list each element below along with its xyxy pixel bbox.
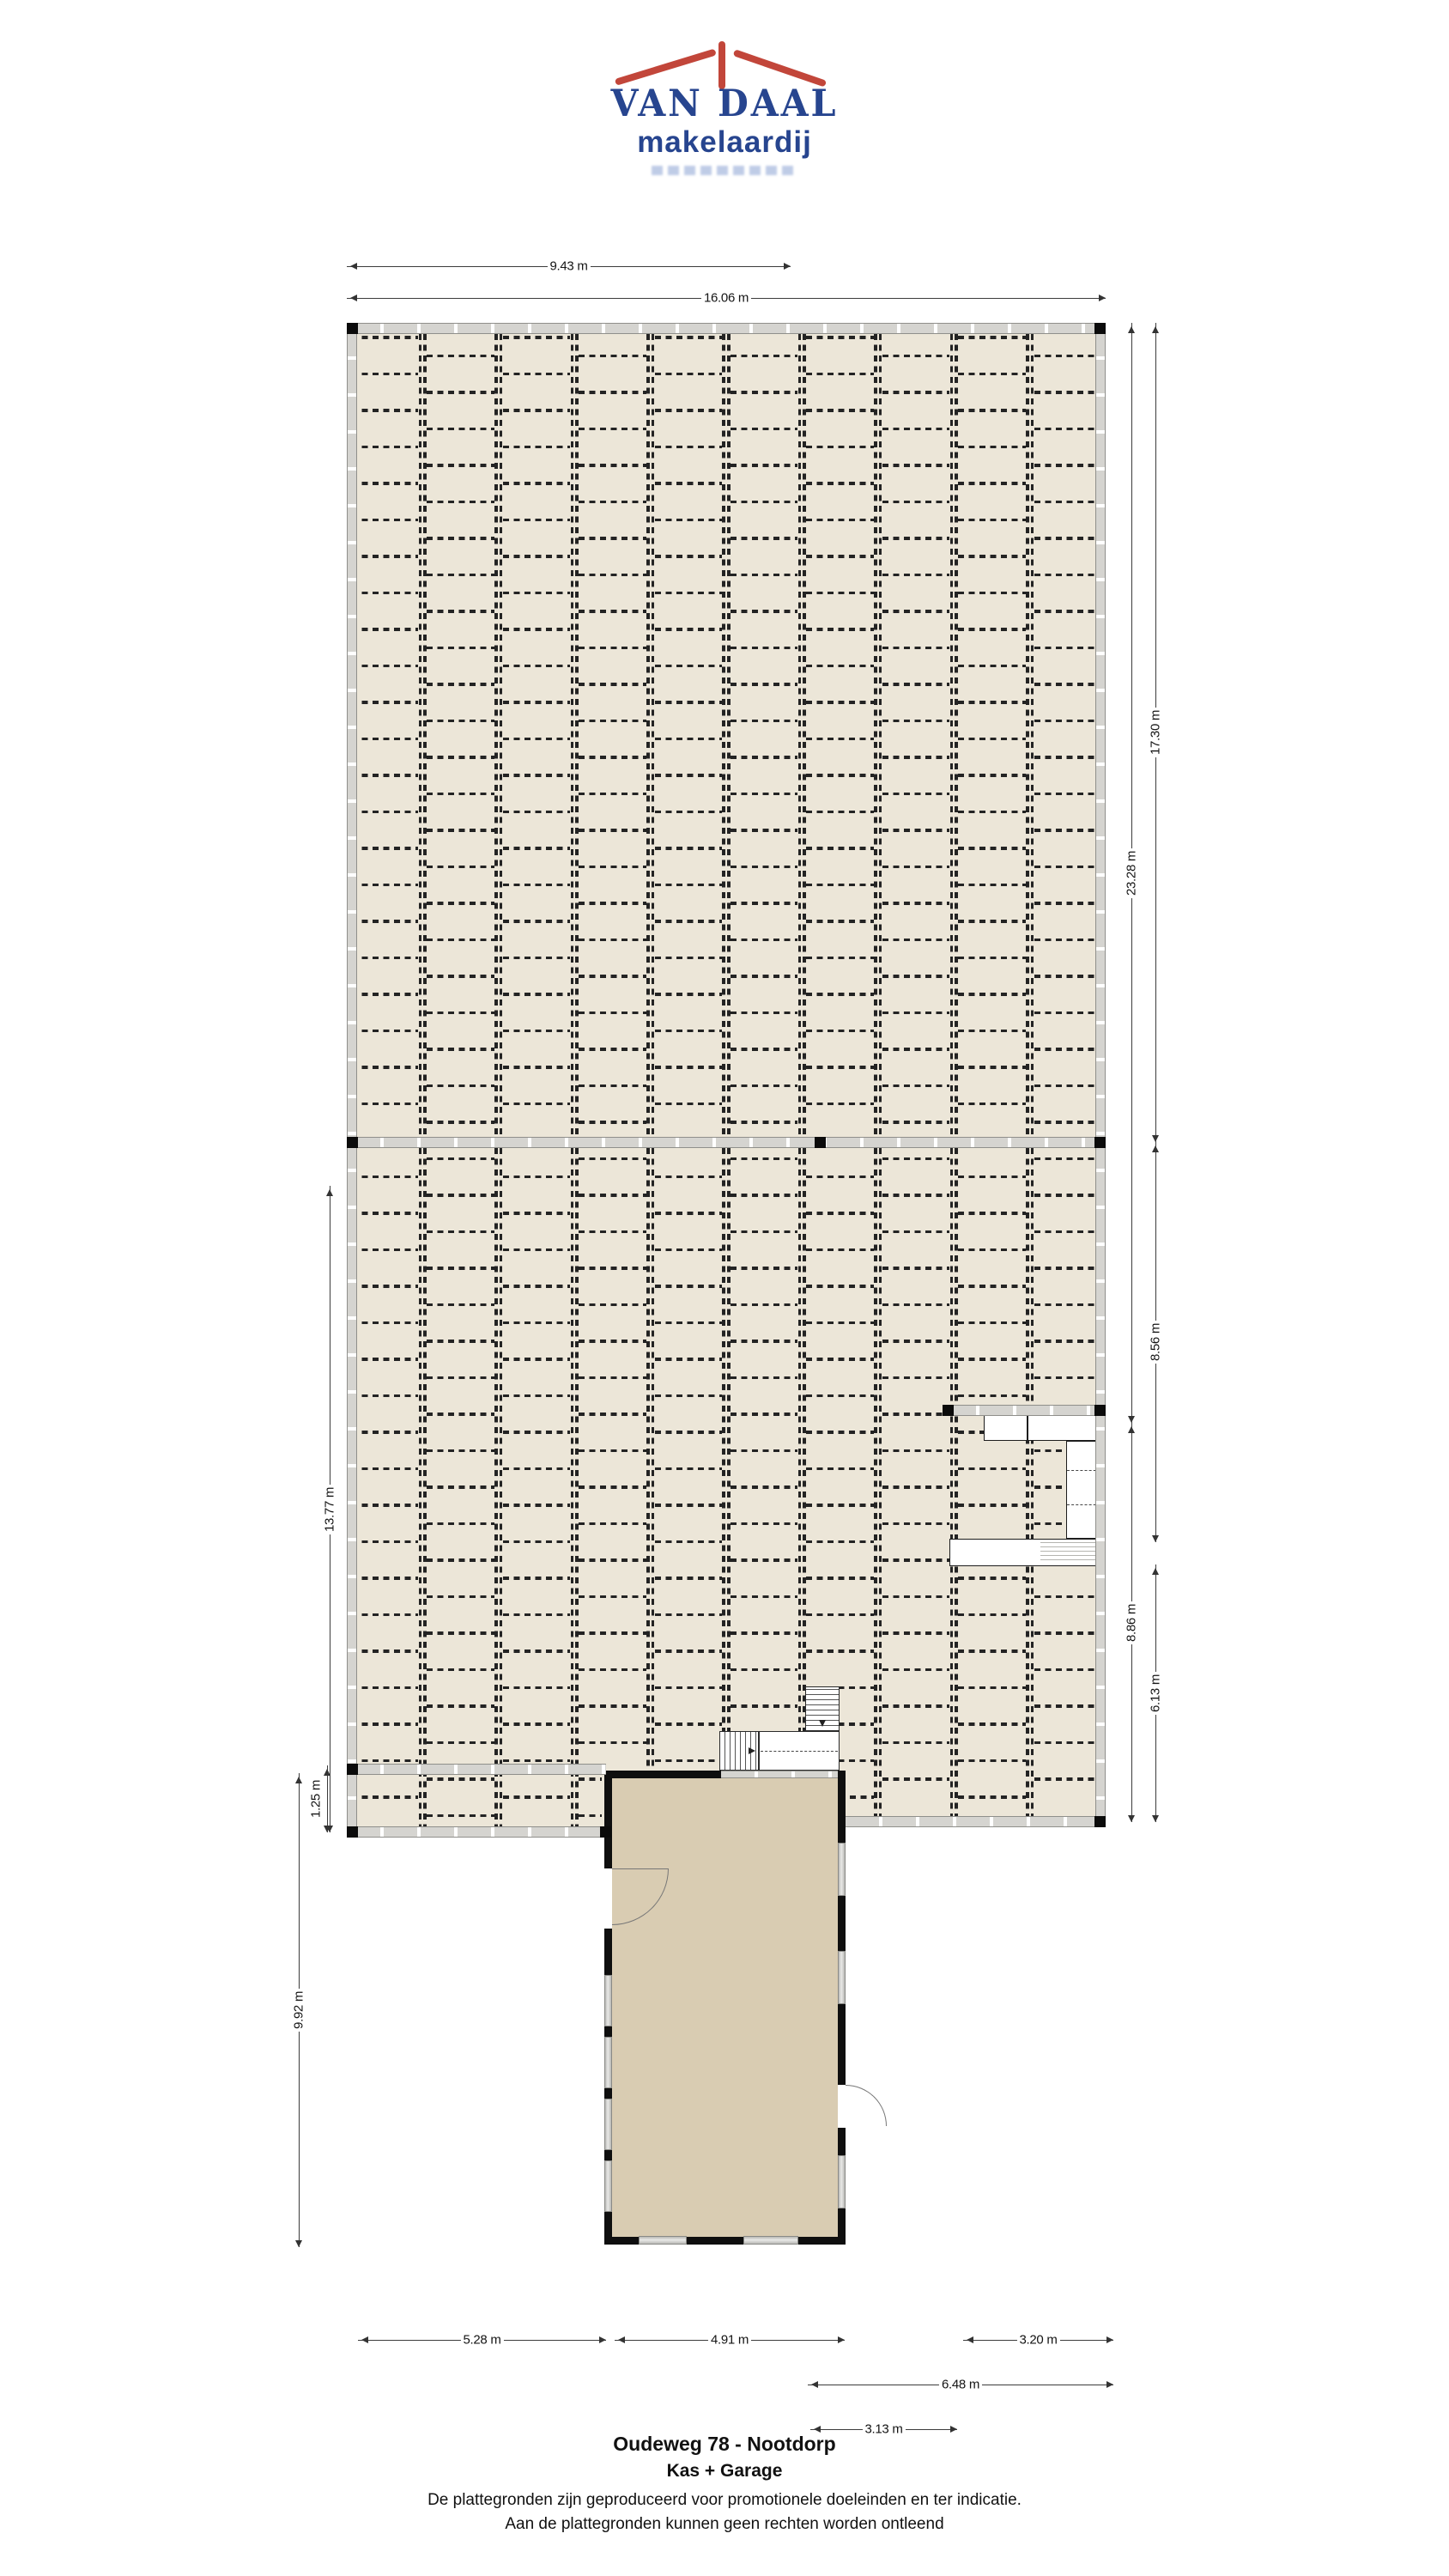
greenhouse-glass-wall bbox=[347, 323, 1106, 334]
crop-row-line bbox=[806, 1394, 873, 1398]
crop-row-line bbox=[503, 1649, 570, 1653]
row-divider-line bbox=[571, 1148, 574, 1771]
crop-row-line bbox=[351, 1321, 418, 1325]
crop-row-line bbox=[351, 1540, 418, 1544]
crop-row-line bbox=[958, 1103, 1025, 1106]
row-divider-line bbox=[874, 334, 877, 1137]
crop-row-line bbox=[351, 1795, 418, 1799]
crop-row-line bbox=[1034, 1704, 1101, 1708]
crop-row-line bbox=[427, 1741, 494, 1745]
crop-row-line bbox=[503, 1540, 570, 1544]
crop-row-line bbox=[1034, 501, 1101, 504]
crop-row-line bbox=[655, 1613, 722, 1617]
crop-row-line bbox=[806, 1504, 873, 1507]
crop-row-line bbox=[731, 647, 797, 650]
crop-row-line bbox=[655, 1103, 722, 1106]
crop-row-line bbox=[958, 373, 1025, 376]
greenhouse-glass-wall bbox=[1095, 323, 1106, 1827]
crop-row-line bbox=[351, 920, 418, 923]
dimension-label: 23.28 m bbox=[1125, 848, 1139, 897]
annex-corridor-hatch bbox=[1040, 1541, 1100, 1564]
crop-row-line bbox=[806, 774, 873, 777]
crop-row-line bbox=[806, 1358, 873, 1361]
crop-row-line bbox=[351, 1212, 418, 1215]
stair-direction-arrow bbox=[749, 1747, 759, 1754]
crop-bed-column bbox=[499, 334, 574, 1137]
crop-row-line bbox=[731, 1340, 797, 1343]
dimension-arrow bbox=[784, 263, 794, 270]
agency-logo: VAN DAAL makelaardij bbox=[0, 0, 1449, 197]
crop-row-line bbox=[731, 391, 797, 394]
crop-row-line bbox=[503, 628, 570, 631]
crop-row-line bbox=[806, 482, 873, 485]
crop-row-line bbox=[579, 391, 646, 394]
crop-row-line bbox=[579, 1340, 646, 1343]
crop-row-line bbox=[806, 1030, 873, 1033]
crop-bed-column bbox=[499, 1148, 574, 1771]
crop-row-line bbox=[806, 1176, 873, 1179]
crop-row-line bbox=[427, 1814, 494, 1818]
crop-row-line bbox=[351, 1358, 418, 1361]
crop-row-line bbox=[503, 336, 570, 339]
crop-row-line bbox=[655, 482, 722, 485]
address-title: Oudeweg 78 - Nootdorp bbox=[0, 2433, 1449, 2456]
crop-row-line bbox=[806, 920, 873, 923]
crop-row-line bbox=[731, 1668, 797, 1672]
crop-row-line bbox=[806, 665, 873, 668]
crop-row-line bbox=[579, 1631, 646, 1635]
crop-row-line bbox=[958, 701, 1025, 704]
dimension-arrow bbox=[950, 2426, 961, 2433]
crop-row-line bbox=[731, 1121, 797, 1124]
crop-row-line bbox=[882, 610, 949, 613]
crop-row-line bbox=[351, 1722, 418, 1726]
crop-row-line bbox=[579, 1194, 646, 1197]
dimension-arrow bbox=[295, 2240, 302, 2251]
stair-direction-arrow bbox=[819, 1720, 826, 1730]
crop-row-line bbox=[351, 1613, 418, 1617]
crop-row-line bbox=[882, 939, 949, 942]
crop-bed-column bbox=[878, 1771, 954, 1818]
crop-row-line bbox=[882, 793, 949, 796]
crop-row-line bbox=[731, 1267, 797, 1270]
dimension-arrow bbox=[347, 263, 357, 270]
row-divider-line bbox=[955, 1148, 958, 1771]
crop-row-line bbox=[958, 555, 1025, 558]
crop-row-line bbox=[731, 1157, 797, 1161]
crop-row-line bbox=[806, 738, 873, 741]
logo-subtitle: makelaardij bbox=[0, 125, 1449, 160]
crop-row-line bbox=[579, 610, 646, 613]
row-divider-line bbox=[803, 334, 806, 1137]
crop-row-line bbox=[351, 738, 418, 741]
crop-row-line bbox=[1034, 683, 1101, 686]
row-divider-line bbox=[500, 1771, 503, 1828]
crop-row-line bbox=[579, 1668, 646, 1672]
row-divider-line bbox=[423, 1771, 427, 1828]
garage-window bbox=[838, 1843, 846, 1896]
crop-row-line bbox=[655, 1431, 722, 1434]
crop-bed-column bbox=[878, 1148, 954, 1771]
crop-row-line bbox=[1034, 1267, 1101, 1270]
crop-bed-column bbox=[422, 1148, 498, 1771]
crop-row-line bbox=[958, 446, 1025, 449]
crop-row-line bbox=[427, 1376, 494, 1380]
crop-row-line bbox=[579, 793, 646, 796]
row-divider-line bbox=[571, 1771, 574, 1828]
dimension-label: 8.86 m bbox=[1125, 1601, 1139, 1643]
crop-bed-column bbox=[802, 1148, 877, 1771]
dimension-label: 13.77 m bbox=[323, 1484, 337, 1534]
crop-row-line bbox=[958, 1321, 1025, 1325]
crop-row-line bbox=[1034, 939, 1101, 942]
crop-row-line bbox=[882, 1777, 949, 1781]
crop-row-line bbox=[731, 1558, 797, 1562]
logo-tagline-faded bbox=[652, 166, 797, 175]
crop-row-line bbox=[1034, 793, 1101, 796]
crop-row-line bbox=[1034, 464, 1101, 467]
crop-row-line bbox=[579, 720, 646, 723]
dimension-arrow bbox=[615, 2336, 625, 2343]
crop-row-line bbox=[1034, 1303, 1101, 1307]
crop-row-line bbox=[806, 957, 873, 960]
crop-row-line bbox=[806, 1467, 873, 1471]
crop-row-line bbox=[503, 446, 570, 449]
crop-row-line bbox=[958, 482, 1025, 485]
greenhouse-glass-wall bbox=[347, 1137, 1106, 1148]
crop-row-line bbox=[427, 1631, 494, 1635]
crop-row-line bbox=[427, 1157, 494, 1161]
crop-row-line bbox=[731, 683, 797, 686]
logo-title: VAN DAAL bbox=[29, 82, 1420, 125]
garage-top-opening bbox=[721, 1771, 838, 1778]
crop-row-line bbox=[958, 1394, 1025, 1398]
dimension-arrow bbox=[1152, 1142, 1159, 1152]
crop-row-line bbox=[655, 336, 722, 339]
crop-row-line bbox=[806, 1649, 873, 1653]
crop-row-line bbox=[503, 482, 570, 485]
crop-row-line bbox=[806, 1577, 873, 1580]
crop-row-line bbox=[958, 1212, 1025, 1215]
crop-row-line bbox=[1034, 1194, 1101, 1197]
row-divider-line bbox=[1031, 1148, 1034, 1771]
row-divider-line bbox=[955, 334, 958, 1137]
crop-row-line bbox=[427, 501, 494, 504]
crop-row-line bbox=[731, 756, 797, 759]
disclaimer-line-2: Aan de plattegronden kunnen geen rechten… bbox=[0, 2515, 1449, 2534]
crop-bed-column bbox=[422, 1771, 498, 1828]
greenhouse-grid bbox=[347, 334, 1106, 1137]
wall-corner-post bbox=[347, 1137, 358, 1148]
crop-row-line bbox=[882, 866, 949, 869]
crop-row-line bbox=[655, 993, 722, 996]
crop-row-line bbox=[958, 1249, 1025, 1252]
crop-row-line bbox=[958, 519, 1025, 522]
crop-row-line bbox=[427, 1777, 494, 1781]
dimension-arrow bbox=[1128, 323, 1135, 333]
greenhouse-grid bbox=[347, 1148, 1106, 1771]
crop-row-line bbox=[882, 1267, 949, 1270]
crop-row-line bbox=[503, 1066, 570, 1069]
crop-row-line bbox=[655, 1467, 722, 1471]
crop-row-line bbox=[882, 720, 949, 723]
crop-row-line bbox=[882, 574, 949, 577]
row-divider-line bbox=[1026, 1148, 1029, 1771]
crop-row-line bbox=[1034, 1084, 1101, 1088]
crop-row-line bbox=[579, 756, 646, 759]
row-divider-line bbox=[575, 1148, 579, 1771]
crop-row-line bbox=[731, 720, 797, 723]
wall-corner-post bbox=[347, 1764, 358, 1775]
crop-row-line bbox=[655, 1066, 722, 1069]
roof-right-slope-icon bbox=[733, 49, 827, 87]
crop-row-line bbox=[427, 1449, 494, 1453]
crop-row-line bbox=[351, 1030, 418, 1033]
crop-row-line bbox=[806, 1431, 873, 1434]
crop-row-line bbox=[882, 1303, 949, 1307]
crop-row-line bbox=[806, 701, 873, 704]
crop-row-line bbox=[503, 1212, 570, 1215]
crop-row-line bbox=[503, 1686, 570, 1690]
crop-row-line bbox=[1034, 1741, 1101, 1745]
crop-row-line bbox=[882, 975, 949, 978]
greenhouse-glass-wall bbox=[347, 1764, 606, 1775]
garage-window bbox=[604, 1975, 612, 2026]
dimension-label: 17.30 m bbox=[1149, 708, 1163, 757]
crop-row-line bbox=[882, 1413, 949, 1416]
crop-row-line bbox=[579, 428, 646, 431]
crop-row-line bbox=[958, 884, 1025, 887]
crop-row-line bbox=[958, 1066, 1025, 1069]
garage-side-door bbox=[604, 1868, 612, 1929]
dimension-label: 3.20 m bbox=[1016, 2333, 1059, 2348]
crop-row-line bbox=[503, 555, 570, 558]
dimension-arrow bbox=[324, 1765, 330, 1776]
crop-row-line bbox=[351, 592, 418, 595]
roof-left-slope-icon bbox=[615, 49, 717, 86]
plan-subtitle: Kas + Garage bbox=[0, 2461, 1449, 2482]
row-divider-line bbox=[652, 1148, 655, 1771]
crop-bed-column bbox=[499, 1771, 574, 1828]
crop-row-line bbox=[351, 1249, 418, 1252]
garage-window bbox=[604, 2160, 612, 2212]
row-divider-line bbox=[500, 1148, 503, 1771]
crop-row-line bbox=[351, 1686, 418, 1690]
garage-floor bbox=[612, 1778, 838, 2237]
crop-row-line bbox=[958, 1686, 1025, 1690]
row-divider-line bbox=[950, 1148, 954, 1771]
crop-row-line bbox=[427, 1230, 494, 1234]
crop-row-line bbox=[579, 355, 646, 358]
crop-row-line bbox=[351, 1467, 418, 1471]
crop-row-line bbox=[958, 920, 1025, 923]
crop-row-line bbox=[731, 1595, 797, 1599]
crop-row-line bbox=[731, 902, 797, 905]
crop-row-line bbox=[731, 464, 797, 467]
crop-row-line bbox=[731, 537, 797, 540]
crop-row-line bbox=[579, 647, 646, 650]
crop-row-line bbox=[958, 847, 1025, 850]
crop-row-line bbox=[882, 355, 949, 358]
crop-row-line bbox=[503, 1467, 570, 1471]
wall-corner-post bbox=[1094, 1816, 1106, 1827]
dimension-arrow bbox=[1152, 1815, 1159, 1826]
crop-row-line bbox=[427, 683, 494, 686]
crop-row-line bbox=[958, 1285, 1025, 1288]
dimension-arrow bbox=[326, 1186, 333, 1196]
crop-row-line bbox=[351, 884, 418, 887]
crop-row-line bbox=[579, 1413, 646, 1416]
row-divider-line bbox=[1031, 334, 1034, 1137]
crop-row-line bbox=[427, 391, 494, 394]
crop-row-line bbox=[655, 738, 722, 741]
dimension-arrow bbox=[599, 2336, 609, 2343]
dimension-arrow bbox=[358, 2336, 368, 2343]
crop-row-line bbox=[579, 1485, 646, 1489]
crop-row-line bbox=[351, 1649, 418, 1653]
crop-row-line bbox=[1034, 537, 1101, 540]
crop-row-line bbox=[351, 628, 418, 631]
crop-row-line bbox=[503, 1795, 570, 1799]
crop-row-line bbox=[351, 774, 418, 777]
crop-row-line bbox=[1034, 647, 1101, 650]
crop-row-line bbox=[731, 975, 797, 978]
crop-row-line bbox=[958, 1504, 1025, 1507]
crop-row-line bbox=[806, 1321, 873, 1325]
wall-corner-post bbox=[347, 1826, 358, 1838]
crop-row-line bbox=[958, 957, 1025, 960]
row-divider-line bbox=[1026, 1771, 1029, 1818]
crop-row-line bbox=[503, 1321, 570, 1325]
dimension-label: 5.28 m bbox=[460, 2333, 503, 2348]
crop-row-line bbox=[503, 1103, 570, 1106]
crop-row-line bbox=[351, 519, 418, 522]
crop-row-line bbox=[882, 647, 949, 650]
crop-row-line bbox=[351, 1176, 418, 1179]
crop-row-line bbox=[503, 409, 570, 412]
row-divider-line bbox=[950, 334, 954, 1137]
crop-row-line bbox=[655, 409, 722, 412]
crop-bed-column bbox=[651, 1148, 726, 1771]
crop-row-line bbox=[1034, 574, 1101, 577]
crop-bed-column bbox=[726, 1148, 802, 1771]
crop-bed-column bbox=[1030, 1771, 1106, 1818]
row-divider-line bbox=[727, 334, 731, 1137]
crop-row-line bbox=[806, 1066, 873, 1069]
crop-row-line bbox=[503, 1394, 570, 1398]
crop-row-line bbox=[958, 1795, 1025, 1799]
crop-row-line bbox=[958, 738, 1025, 741]
row-divider-line bbox=[798, 334, 802, 1137]
crop-row-line bbox=[806, 373, 873, 376]
crop-row-line bbox=[731, 610, 797, 613]
crop-row-line bbox=[731, 793, 797, 796]
crop-bed-column bbox=[954, 1771, 1029, 1818]
crop-row-line bbox=[351, 957, 418, 960]
crop-row-line bbox=[806, 1212, 873, 1215]
crop-row-line bbox=[655, 1577, 722, 1580]
crop-row-line bbox=[503, 993, 570, 996]
row-divider-line bbox=[1026, 334, 1029, 1137]
crop-row-line bbox=[882, 391, 949, 394]
dimension-arrow bbox=[1099, 295, 1109, 301]
row-divider-line bbox=[646, 334, 650, 1137]
crop-row-line bbox=[427, 1485, 494, 1489]
row-divider-line bbox=[652, 334, 655, 1137]
crop-row-line bbox=[351, 1504, 418, 1507]
crop-row-line bbox=[731, 1048, 797, 1051]
crop-row-line bbox=[958, 336, 1025, 339]
wall-corner-post bbox=[1094, 1405, 1106, 1416]
crop-row-line bbox=[655, 957, 722, 960]
crop-bed-column bbox=[954, 334, 1029, 1137]
greenhouse-glass-wall bbox=[846, 1816, 1106, 1827]
crop-row-line bbox=[427, 975, 494, 978]
crop-row-line bbox=[655, 373, 722, 376]
crop-row-line bbox=[731, 866, 797, 869]
garage-window bbox=[604, 2037, 612, 2088]
crop-row-line bbox=[503, 1431, 570, 1434]
dimension-arrow bbox=[838, 2336, 848, 2343]
crop-bed-column bbox=[846, 1771, 878, 1818]
row-divider-line bbox=[727, 1148, 731, 1771]
greenhouse-glass-wall bbox=[943, 1405, 1106, 1416]
annex-room-divider bbox=[1027, 1415, 1028, 1441]
row-divider-line bbox=[879, 334, 882, 1137]
crop-row-line bbox=[882, 1485, 949, 1489]
crop-row-line bbox=[731, 939, 797, 942]
dimension-arrow bbox=[1152, 323, 1159, 333]
crop-row-line bbox=[579, 1814, 602, 1818]
crop-row-line bbox=[655, 1212, 722, 1215]
wall-corner-post bbox=[943, 1405, 954, 1416]
crop-row-line bbox=[806, 1249, 873, 1252]
crop-row-line bbox=[503, 774, 570, 777]
crop-row-line bbox=[503, 1613, 570, 1617]
crop-row-line bbox=[882, 1121, 949, 1124]
crop-row-line bbox=[351, 409, 418, 412]
crop-row-line bbox=[579, 1084, 646, 1088]
crop-row-line bbox=[579, 1558, 646, 1562]
greenhouse-grid bbox=[347, 1771, 606, 1828]
dimension-label: 16.06 m bbox=[701, 291, 751, 306]
crop-row-line bbox=[882, 537, 949, 540]
crop-row-line bbox=[427, 1267, 494, 1270]
crop-row-line bbox=[655, 1321, 722, 1325]
crop-row-line bbox=[655, 519, 722, 522]
crop-row-line bbox=[655, 701, 722, 704]
crop-row-line bbox=[1034, 1121, 1101, 1124]
crop-bed-column bbox=[347, 1148, 422, 1771]
crop-row-line bbox=[579, 1777, 602, 1781]
dimension-label: 9.43 m bbox=[547, 259, 590, 274]
crop-row-line bbox=[806, 1103, 873, 1106]
crop-row-line bbox=[958, 1722, 1025, 1726]
crop-row-line bbox=[958, 592, 1025, 595]
crop-row-line bbox=[731, 355, 797, 358]
annex-room bbox=[984, 1415, 1106, 1441]
crop-row-line bbox=[579, 939, 646, 942]
row-divider-line bbox=[423, 334, 427, 1137]
row-divider-line bbox=[879, 1148, 882, 1771]
crop-row-line bbox=[351, 1577, 418, 1580]
crop-row-line bbox=[503, 1030, 570, 1033]
crop-row-line bbox=[503, 1249, 570, 1252]
crop-row-line bbox=[655, 1285, 722, 1288]
crop-row-line bbox=[1034, 1777, 1101, 1781]
crop-row-line bbox=[579, 1121, 646, 1124]
wall-corner-post bbox=[1094, 1137, 1106, 1148]
